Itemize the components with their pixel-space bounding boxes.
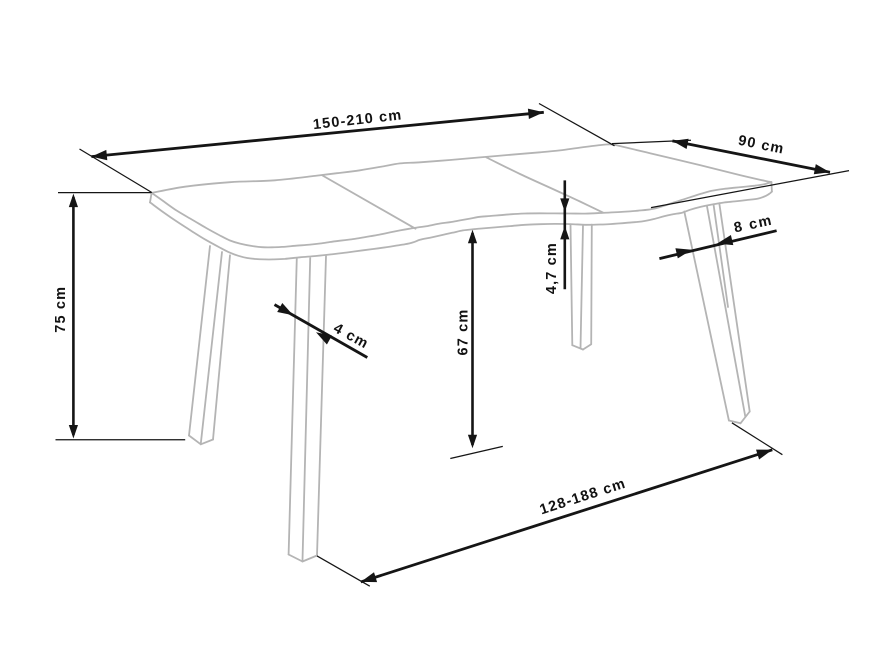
svg-text:67 cm: 67 cm [456, 309, 472, 356]
svg-text:4,7 cm: 4,7 cm [544, 242, 560, 294]
svg-text:75 cm: 75 cm [53, 286, 69, 333]
